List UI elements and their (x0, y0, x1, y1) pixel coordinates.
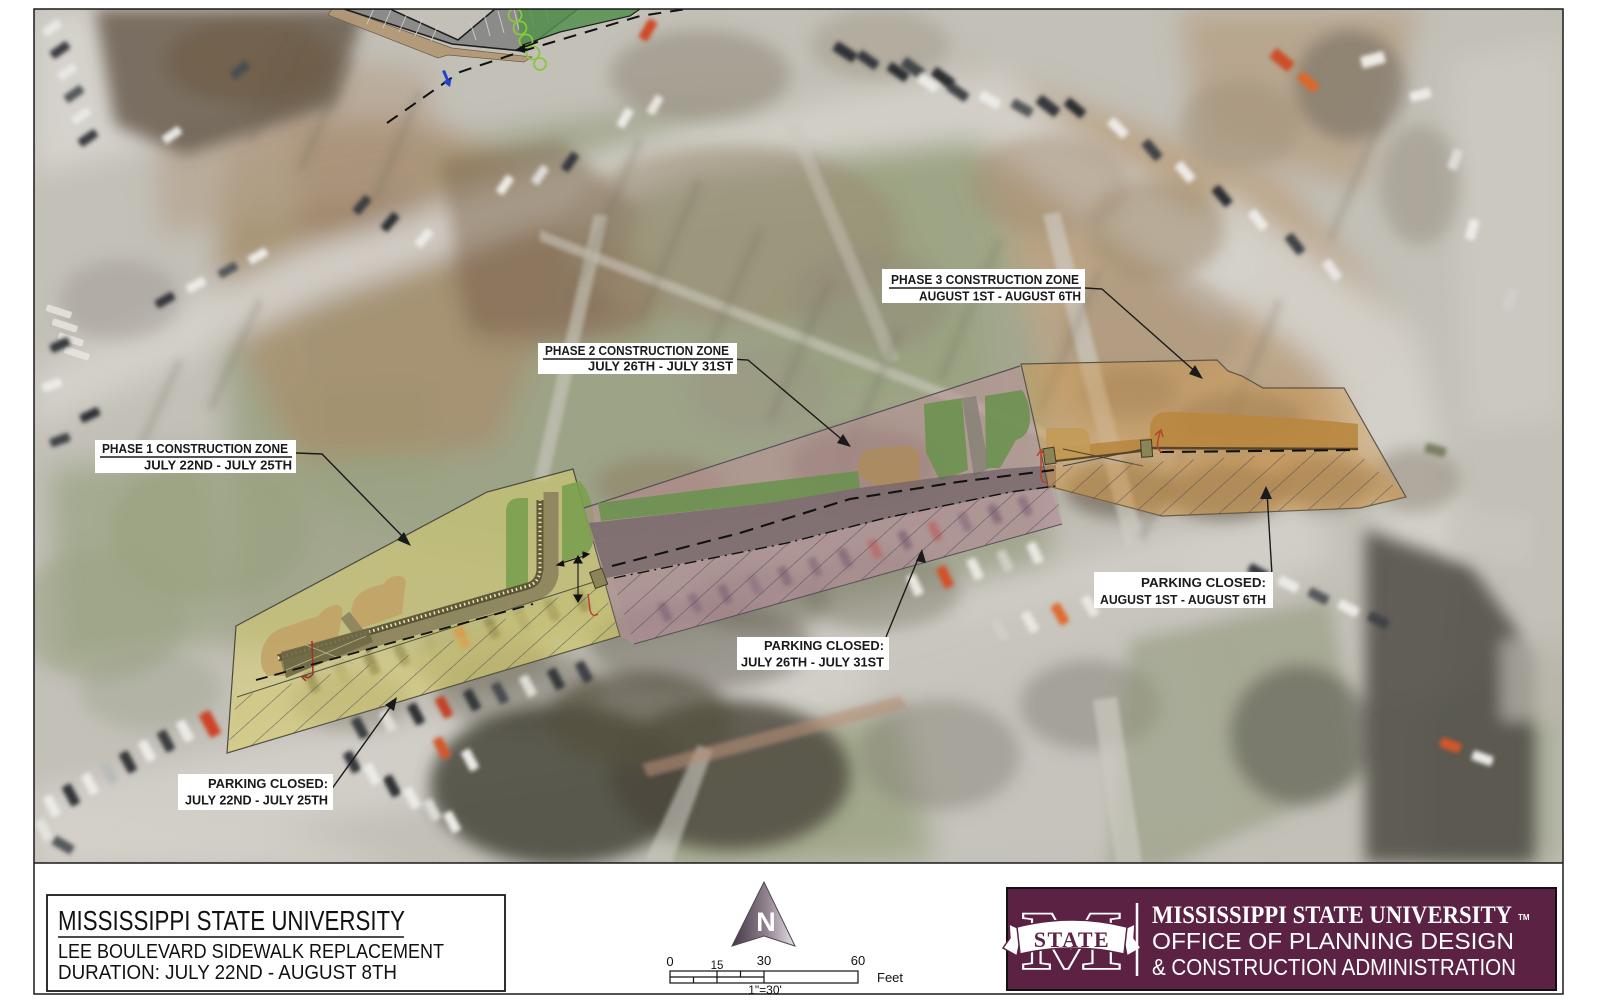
svg-text:MISSISSIPPI STATE UNIVERSITY: MISSISSIPPI STATE UNIVERSITY (1152, 902, 1512, 929)
svg-text:MISSISSIPPI STATE UNIVERSITY: MISSISSIPPI STATE UNIVERSITY (58, 905, 405, 936)
svg-text:Feet: Feet (877, 970, 903, 985)
svg-text:JULY 22ND - JULY 25TH: JULY 22ND - JULY 25TH (185, 793, 328, 808)
svg-text:N: N (756, 907, 776, 937)
svg-text:PHASE 2 CONSTRUCTION ZONE: PHASE 2 CONSTRUCTION ZONE (545, 343, 729, 358)
svg-text:PHASE 1 CONSTRUCTION ZONE: PHASE 1 CONSTRUCTION ZONE (102, 441, 288, 456)
svg-text:1"=30': 1"=30' (748, 983, 782, 997)
svg-text:JULY 22ND - JULY 25TH: JULY 22ND - JULY 25TH (144, 458, 292, 473)
svg-text:15: 15 (711, 960, 724, 972)
svg-text:PHASE 3 CONSTRUCTION ZONE: PHASE 3 CONSTRUCTION ZONE (891, 272, 1079, 287)
svg-text:PARKING CLOSED:: PARKING CLOSED: (764, 638, 884, 653)
svg-text:JULY 26TH - JULY 31ST: JULY 26TH - JULY 31ST (741, 655, 884, 670)
svg-text:AUGUST 1ST - AUGUST 6TH: AUGUST 1ST - AUGUST 6TH (1100, 592, 1266, 607)
svg-text:TM: TM (1518, 913, 1530, 922)
svg-text:STATE: STATE (1034, 927, 1110, 952)
svg-text:JULY 26TH - JULY 31ST: JULY 26TH - JULY 31ST (588, 359, 733, 374)
svg-text:PARKING CLOSED:: PARKING CLOSED: (1141, 575, 1266, 590)
svg-text:60: 60 (851, 953, 865, 968)
svg-text:0: 0 (666, 954, 673, 969)
svg-text:DURATION: JULY 22ND - AUGUST 8: DURATION: JULY 22ND - AUGUST 8TH (58, 961, 397, 984)
svg-text:OFFICE OF PLANNING DESIGN: OFFICE OF PLANNING DESIGN (1152, 928, 1514, 954)
svg-text:30: 30 (757, 953, 771, 968)
svg-text:& CONSTRUCTION ADMINISTRATION: & CONSTRUCTION ADMINISTRATION (1152, 954, 1516, 980)
svg-text:AUGUST 1ST - AUGUST 6TH: AUGUST 1ST - AUGUST 6TH (919, 289, 1081, 304)
svg-text:PARKING CLOSED:: PARKING CLOSED: (208, 776, 328, 791)
svg-text:LEE BOULEVARD SIDEWALK REPLACE: LEE BOULEVARD SIDEWALK REPLACEMENT (58, 940, 444, 963)
